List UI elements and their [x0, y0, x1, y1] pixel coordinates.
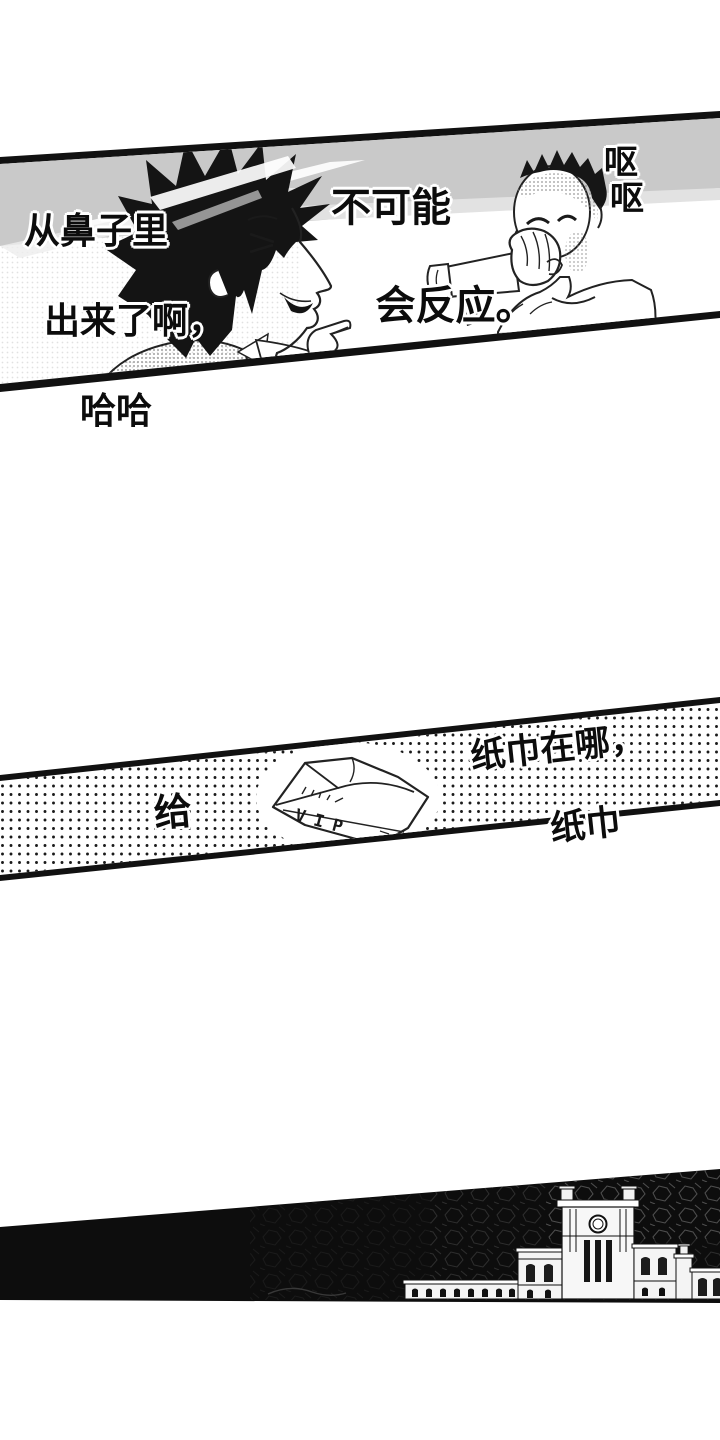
speech-from-nose: 从鼻子里 出来了啊， 哈哈 [4, 208, 188, 478]
speech-from-nose-line1: 从鼻子里 [24, 210, 168, 251]
speech-from-nose-line3: 哈哈 [80, 390, 152, 431]
speech-impossible-line2: 会反应。 [375, 284, 535, 328]
sfx-retch-1: 呕 [604, 143, 638, 183]
sfx-retch-2: 呕 [610, 179, 644, 219]
speech-impossible-line1: 不可能 [331, 186, 451, 230]
speech-where-tissue: 纸巾在哪， 纸巾 [458, 718, 670, 898]
speech-where-tissue-line2: 纸巾 [549, 802, 623, 848]
speech-give: 给 [152, 789, 194, 837]
speech-impossible: 不可能 会反应。 [331, 184, 521, 380]
panel-bottom-palace [0, 1160, 720, 1310]
manga-page: 从鼻子里 出来了啊， 哈哈 不可能 会反应。 呕 呕 [0, 0, 720, 1440]
speech-from-nose-line2: 出来了啊， [44, 300, 224, 341]
